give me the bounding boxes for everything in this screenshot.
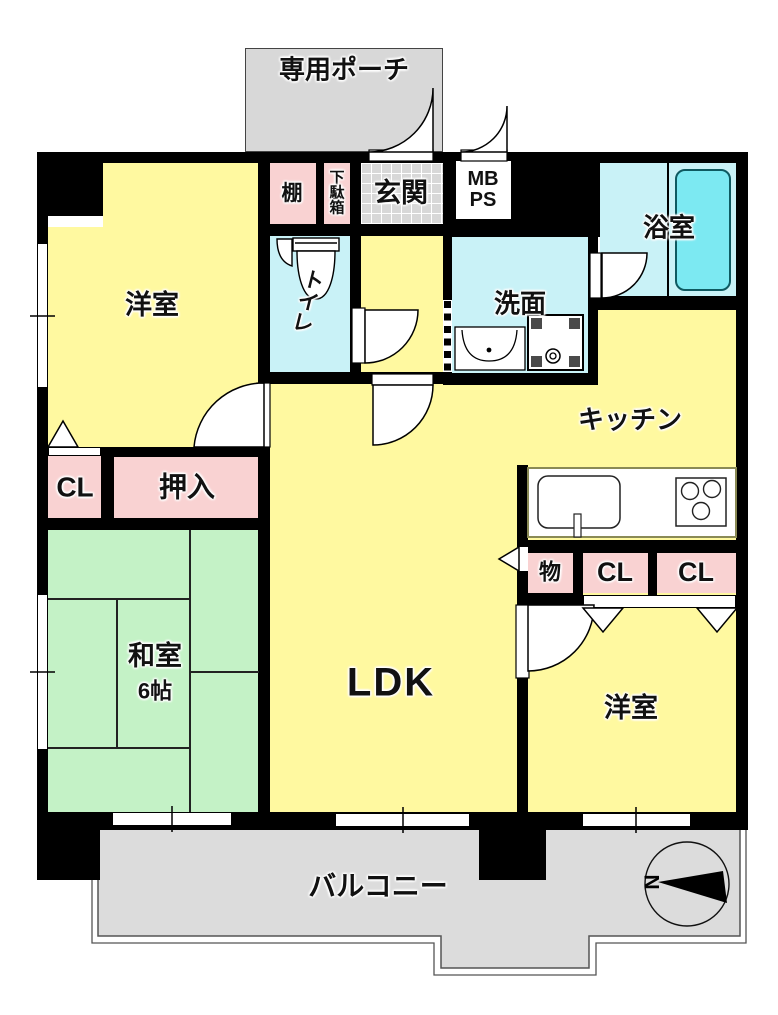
kitchen-counter-icon (528, 468, 736, 537)
label-shelf: 棚 (282, 182, 303, 206)
triangle-closet-1 (48, 421, 78, 447)
label-closet-2: CL (597, 557, 633, 587)
sink-icon (455, 327, 525, 370)
kitchen-faucet (574, 514, 581, 537)
label-storage: 物 (539, 561, 561, 586)
triangle-closet-3 (697, 608, 737, 632)
door-leaves (257, 150, 601, 678)
plan-linework: N (0, 0, 778, 1015)
label-western-2: 洋室 (604, 693, 658, 723)
door-leaf-bath (590, 253, 601, 298)
door-arc-ldk (373, 385, 433, 445)
door-arc-mbps (461, 106, 507, 152)
label-bathroom: 浴室 (643, 213, 695, 242)
label-shoe-cabinet: 下 駄 箱 (329, 171, 344, 216)
label-balcony: バルコニー (308, 870, 447, 901)
label-kitchen: キッチン (578, 405, 682, 434)
compass-needle (658, 871, 727, 903)
label-western-1: 洋室 (125, 290, 179, 320)
door-arc-bath (602, 253, 647, 298)
door-arc-western-2 (528, 605, 594, 671)
label-washroom: 洗面 (494, 289, 546, 318)
door-arc-hall (365, 310, 418, 363)
label-japanese-room-size: 6帖 (138, 680, 172, 705)
label-private-porch: 専用ポーチ (279, 55, 409, 84)
door-leaf-ldk (372, 374, 433, 385)
label-ldk: LDK (347, 661, 435, 706)
compass: N (641, 842, 729, 926)
door-arc-western-1 (194, 383, 264, 447)
door-arc-entrance (369, 88, 433, 152)
label-closet-3: CL (678, 557, 714, 587)
floor-plan: N 専用ポーチ 棚 下 駄 箱 玄関 MB PS 浴室 洗面 ト イ レ 洋室 … (0, 0, 778, 1015)
door-leaf-western-2 (516, 605, 529, 678)
door-leaf-hall (352, 308, 365, 363)
compass-north-label: N (641, 874, 664, 889)
label-entrance: 玄関 (374, 178, 428, 208)
label-closet-1: CL (56, 471, 93, 502)
label-japanese-room: 和室 (128, 641, 182, 671)
washing-machine-icon (528, 315, 583, 370)
label-oshiire: 押入 (159, 471, 215, 502)
label-mbps: MB PS (467, 169, 498, 211)
triangle-storage (499, 547, 519, 571)
